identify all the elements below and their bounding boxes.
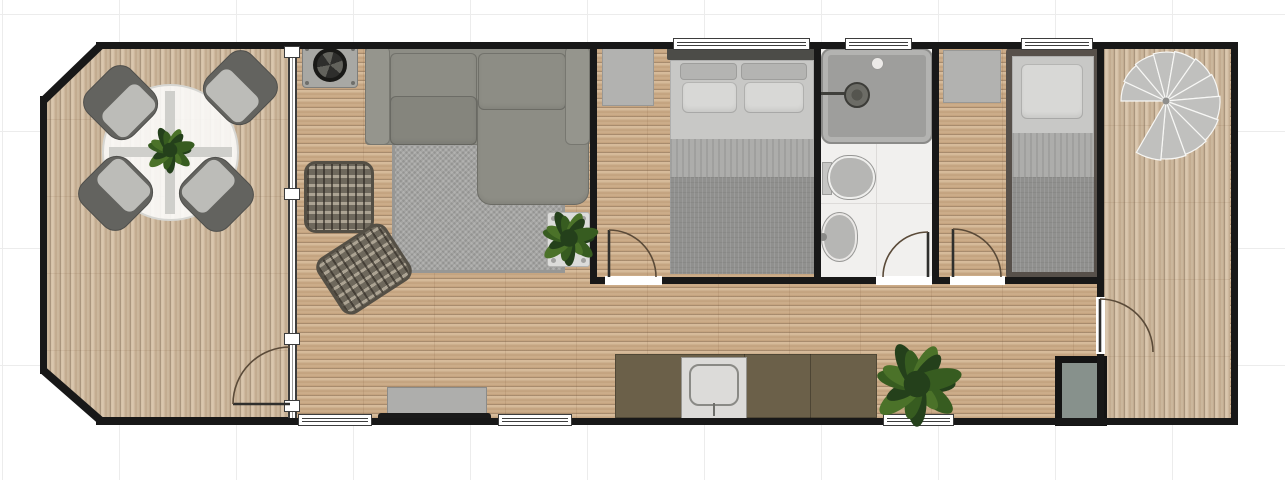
window xyxy=(298,414,372,426)
stove-burner-icon xyxy=(313,48,347,82)
pillow xyxy=(682,82,737,113)
wood-stove xyxy=(302,44,358,88)
glass-mullion xyxy=(284,333,300,345)
sofa-back-cushion xyxy=(478,53,566,110)
wicker-pouf xyxy=(304,161,374,233)
pillow xyxy=(1021,64,1083,119)
wall-right xyxy=(1231,42,1238,425)
bed-sheet-fold xyxy=(1012,133,1094,177)
wall-bedroom-bath xyxy=(814,42,821,284)
window xyxy=(1021,38,1093,50)
wardrobe xyxy=(943,50,1001,103)
glass-mullion xyxy=(284,400,300,412)
shower-arm xyxy=(821,92,846,95)
wardrobe xyxy=(602,48,654,106)
pillow xyxy=(680,63,737,80)
plant-stand xyxy=(547,212,590,267)
shower-head xyxy=(844,82,870,108)
wall-living-bedroom xyxy=(590,42,597,284)
bed-blanket xyxy=(670,177,814,274)
window xyxy=(498,414,572,426)
bathroom-tile-seam xyxy=(821,203,932,204)
window xyxy=(845,38,912,50)
kitchen-sink xyxy=(681,357,747,419)
glass-facade xyxy=(288,46,297,418)
glass-mullion xyxy=(284,46,300,58)
shower-drain xyxy=(871,57,884,70)
wall-deck-bottom xyxy=(96,417,295,425)
stair-room-floor xyxy=(1104,48,1230,418)
bed-sheet-fold xyxy=(670,139,814,177)
bed-blanket xyxy=(1012,177,1094,272)
door-opening xyxy=(1096,297,1105,354)
tv-screen xyxy=(387,387,487,414)
door-opening xyxy=(950,276,1005,285)
window xyxy=(883,414,954,426)
sofa-armrest xyxy=(365,46,390,145)
door-opening xyxy=(605,276,662,285)
toilet xyxy=(828,156,875,199)
wall-bath-bedroom2 xyxy=(932,42,939,284)
wall-deck-left xyxy=(40,96,47,374)
floor-plan-canvas xyxy=(0,0,1285,480)
pillow xyxy=(744,82,804,113)
door-opening xyxy=(876,276,932,285)
sofa-armrest xyxy=(565,46,590,145)
wall-stair-room xyxy=(1097,42,1104,425)
sofa-seat-cushion xyxy=(390,96,477,145)
wall-corridor xyxy=(590,277,1104,284)
window xyxy=(673,38,810,50)
glass-mullion xyxy=(284,188,300,200)
bathroom-tile-seam xyxy=(876,144,877,277)
washbasin xyxy=(822,213,857,261)
pillow xyxy=(741,63,807,80)
